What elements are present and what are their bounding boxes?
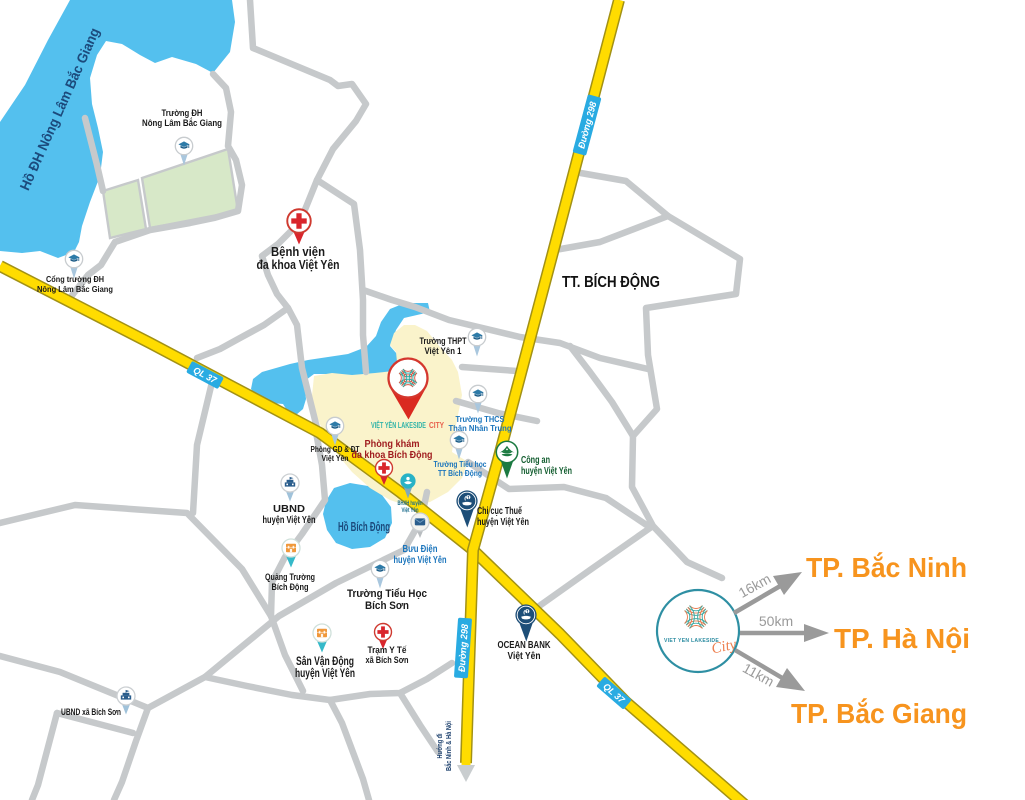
svg-text:Cổng trường ĐH: Cổng trường ĐH [46,274,104,284]
svg-text:OCEAN BANK: OCEAN BANK [498,640,552,651]
svg-text:Trường Tiểu học: Trường Tiểu học [434,460,487,469]
svg-text:Hồ Bích Động: Hồ Bích Động [338,520,390,534]
svg-text:UBND: UBND [273,504,305,515]
svg-text:Chi cục Thuế: Chi cục Thuế [477,505,522,517]
svg-text:TP. Hà Nội: TP. Hà Nội [834,623,970,654]
svg-text:Trường Tiểu Học: Trường Tiểu Học [347,588,427,600]
svg-text:Nông Lâm Bắc Giang: Nông Lâm Bắc Giang [142,117,222,129]
svg-text:CITY: CITY [429,421,445,430]
svg-text:Việt Yên 1: Việt Yên 1 [425,346,462,356]
svg-text:Bệnh viện: Bệnh viện [271,245,325,259]
svg-text:đa khoa Bích Động: đa khoa Bích Động [352,449,433,461]
svg-text:50km: 50km [759,613,793,629]
svg-text:TP. Bắc Giang: TP. Bắc Giang [791,698,967,729]
svg-text:VIỆT YÊN LAKESIDE: VIỆT YÊN LAKESIDE [371,421,426,430]
svg-text:Sân Vận Động: Sân Vận Động [296,656,354,668]
svg-text:Hướng đi: Hướng đi [437,733,444,758]
svg-text:huyện Việt Yên: huyện Việt Yên [477,517,529,528]
svg-text:huyện Việt Yên: huyện Việt Yên [295,668,355,680]
svg-text:TP. Bắc Ninh: TP. Bắc Ninh [806,552,967,583]
svg-text:Việt Yên: Việt Yên [322,454,349,463]
svg-text:Phòng GD & ĐT: Phòng GD & ĐT [311,445,360,454]
svg-text:Việt Yên: Việt Yên [508,651,541,662]
svg-text:Bưu Điện: Bưu Điện [403,544,438,555]
svg-text:Công an: Công an [521,455,550,466]
svg-text:TT Bích Động: TT Bích Động [438,469,482,478]
svg-text:Bích Động: Bích Động [272,582,309,593]
svg-text:Nông Lâm Bắc Giang: Nông Lâm Bắc Giang [37,283,113,294]
svg-text:Bích Sơn: Bích Sơn [365,600,409,612]
svg-text:Bắc Ninh & Hà Nội: Bắc Ninh & Hà Nội [444,721,453,771]
svg-text:Trường THPT: Trường THPT [420,336,467,346]
svg-text:Việt Yên: Việt Yên [402,507,419,514]
svg-text:BHXH huyện: BHXH huyện [398,500,423,507]
svg-text:xã Bích Sơn: xã Bích Sơn [366,655,409,665]
svg-text:huyện Việt Yên: huyện Việt Yên [521,466,572,477]
svg-text:huyện Việt Yên: huyện Việt Yên [263,515,316,526]
svg-text:Trạm Y Tế: Trạm Y Tế [368,645,408,655]
svg-text:TT. BÍCH ĐỘNG: TT. BÍCH ĐỘNG [562,273,660,291]
svg-text:UBND xã Bích Sơn: UBND xã Bích Sơn [61,707,121,717]
svg-text:huyện Việt Yên: huyện Việt Yên [394,555,447,566]
svg-text:đa khoa Việt Yên: đa khoa Việt Yên [257,258,340,272]
